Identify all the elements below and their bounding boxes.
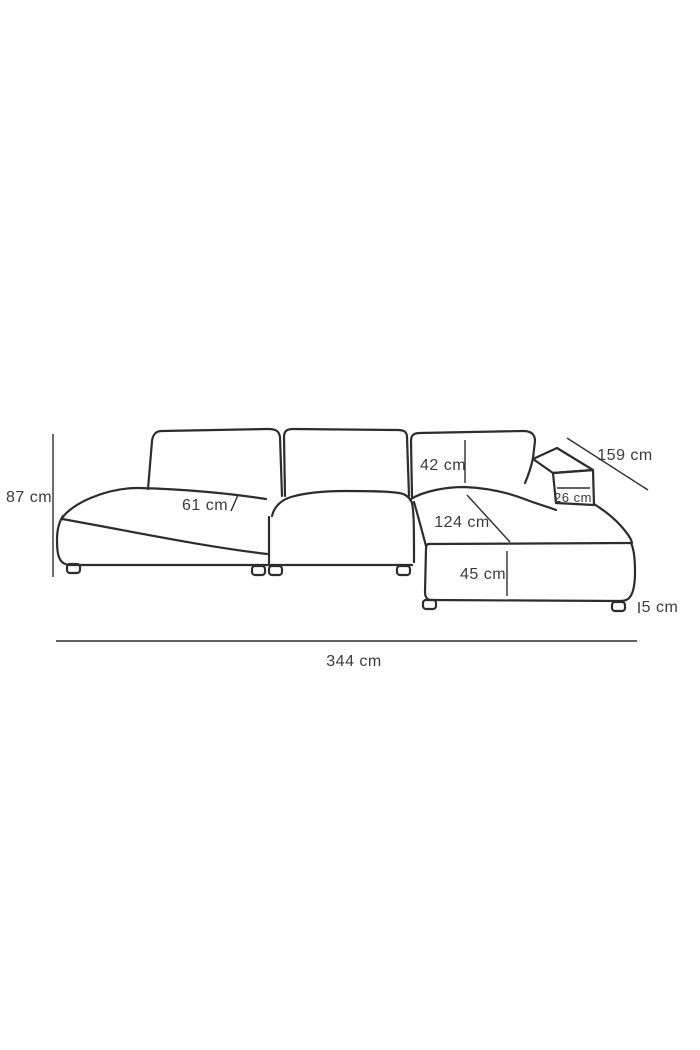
chaise-pillow-top-edge xyxy=(411,487,556,510)
chaise-right-edge xyxy=(620,543,635,601)
dimension-line-chaise-side-depth xyxy=(567,438,648,490)
sofa-dimension-diagram: 87 cm 61 cm 42 cm 159 cm 26 cm 124 cm 45… xyxy=(0,0,700,1050)
left-module-pillow-top-edge xyxy=(63,488,266,517)
sofa-leg xyxy=(612,602,625,611)
sofa-leg xyxy=(423,600,436,609)
left-module-side-profile xyxy=(57,516,71,565)
chaise-front-left-corner xyxy=(425,544,431,600)
chaise-left-edge xyxy=(414,502,426,546)
armrest-top-face xyxy=(533,448,593,473)
dimension-label-overall-width: 344 cm xyxy=(326,653,381,670)
sofa-drawing xyxy=(57,429,635,611)
dimension-label-back-cushion-height: 42 cm xyxy=(420,457,466,474)
chaise-front-top-fold xyxy=(429,543,631,544)
dimension-label-seat-height: 45 cm xyxy=(460,566,506,583)
chaise-bottom-edge xyxy=(431,600,620,601)
dimension-label-armrest-width: 26 cm xyxy=(554,490,592,505)
dimension-label-chaise-length: 124 cm xyxy=(434,514,489,531)
dimension-label-seat-depth: 61 cm xyxy=(182,497,228,514)
sofa-leg xyxy=(252,566,265,575)
middle-seat-cushion xyxy=(272,491,414,562)
sofa-leg xyxy=(269,566,282,575)
dimension-label-chaise-side-depth: 159 cm xyxy=(597,447,652,464)
dimension-label-leg-height: 5 cm xyxy=(642,599,679,616)
sofa-leg xyxy=(397,566,410,575)
left-module-front-fold xyxy=(62,519,267,554)
dimension-tick-seat-depth xyxy=(231,495,238,511)
dimension-annotations: 87 cm 61 cm 42 cm 159 cm 26 cm 124 cm 45… xyxy=(6,434,678,670)
back-cushion-left xyxy=(148,429,282,496)
back-cushion-middle xyxy=(284,429,409,496)
chaise-outer-edge xyxy=(594,504,632,543)
sofa-legs xyxy=(67,564,625,611)
dimension-label-overall-height: 87 cm xyxy=(6,489,52,506)
diagram-svg: 87 cm 61 cm 42 cm 159 cm 26 cm 124 cm 45… xyxy=(0,0,700,1050)
